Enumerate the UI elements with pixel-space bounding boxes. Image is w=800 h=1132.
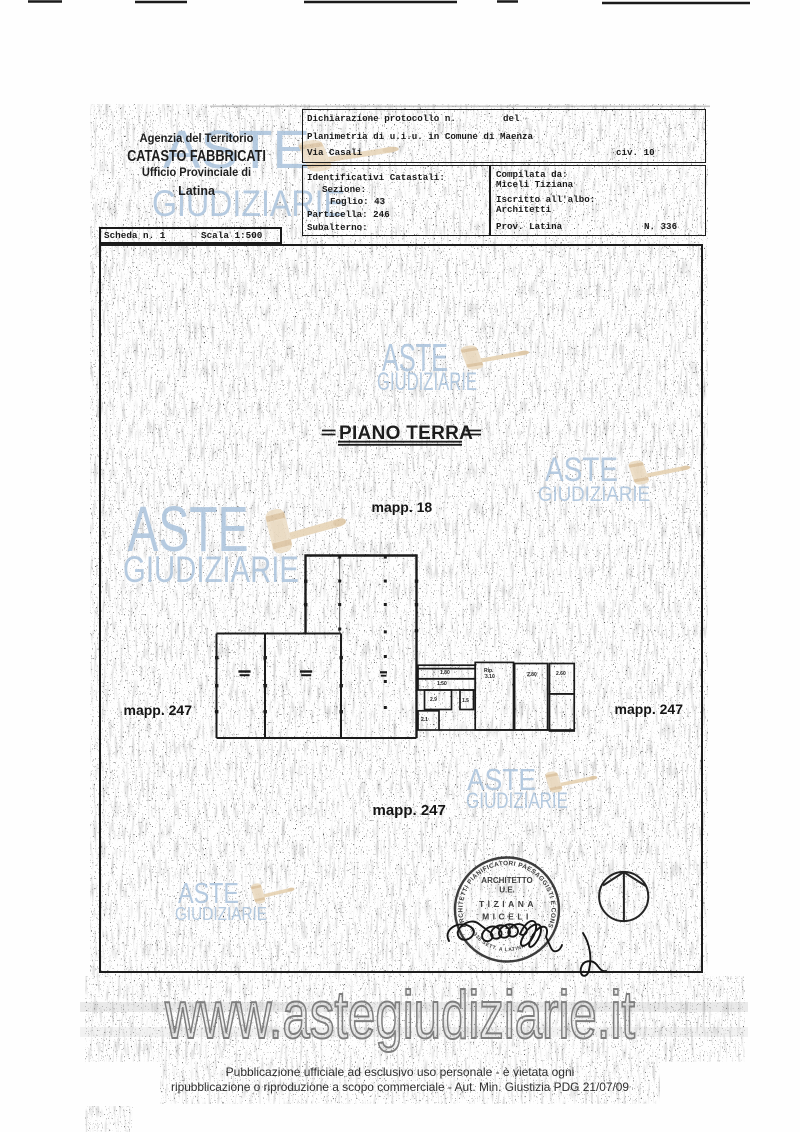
svg-text:1.80: 1.80 (440, 670, 450, 676)
svg-text:2.1: 2.1 (421, 717, 428, 723)
svg-text:2.80: 2.80 (527, 672, 537, 678)
svg-text:ARCHITETTI PIANIFICATORI PAESA: ARCHITETTI PIANIFICATORI PAESAGGISTI E C… (0, 0, 557, 929)
svg-text:1.50: 1.50 (437, 681, 447, 687)
svg-text:TIZIANA: TIZIANA (479, 899, 537, 909)
svg-text:2.60: 2.60 (556, 671, 566, 677)
svg-text:2.9: 2.9 (430, 697, 437, 703)
svg-text:3.10: 3.10 (485, 674, 495, 680)
svg-text:MICELI: MICELI (482, 912, 532, 922)
svg-text:1.5: 1.5 (462, 698, 469, 704)
svg-text:U.E.: U.E. (499, 886, 515, 895)
svg-text:ARCHITETTO: ARCHITETTO (481, 876, 532, 885)
